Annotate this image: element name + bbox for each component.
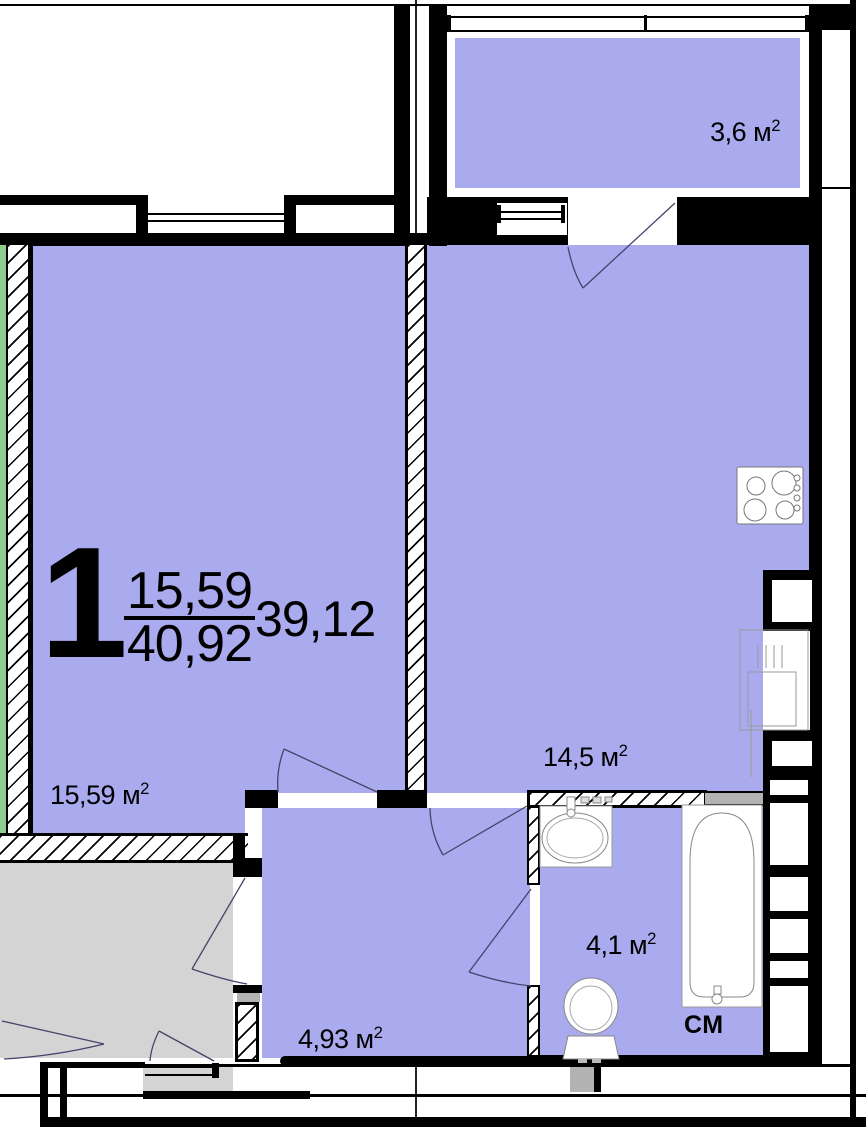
- hallway-area-label: 4,93 м2: [298, 1023, 382, 1055]
- unit-room-count: 1: [40, 542, 124, 665]
- neighbor-door-swing: [150, 1031, 214, 1061]
- living-room-area-label: 15,59 м2: [50, 779, 149, 811]
- toilet-icon: [563, 978, 619, 1063]
- kitchen-hall-door-swing: [430, 806, 527, 855]
- unit-area-fraction: 15,59 40,92: [124, 570, 255, 666]
- neighbor-door-swing: [2, 1021, 104, 1059]
- floor-plan: 3,6 м2 15,59 м2 14,5 м2 4,93 м2 4,1 м2 С…: [0, 0, 866, 1127]
- unit-living-area: 15,59: [124, 570, 255, 620]
- kitchen-sink-unit-icon: [740, 630, 808, 777]
- balcony-door-swing: [568, 203, 675, 288]
- balcony-area-label: 3,6 м2: [640, 116, 780, 148]
- unit-total-area: 40,92: [124, 620, 255, 667]
- kitchen-area-label: 14,5 м2: [543, 741, 627, 773]
- living-room-door-swing: [278, 749, 377, 792]
- bathroom-door-swing: [469, 889, 531, 986]
- sink-icon: [540, 797, 612, 867]
- washing-machine-label: СМ: [684, 1011, 724, 1040]
- bathtub-icon: [682, 805, 762, 1007]
- unit-summary-label: 1 15,59 40,92 39,12: [40, 542, 375, 666]
- stove-icon: [737, 467, 803, 524]
- unit-adjusted-area: 39,12: [255, 597, 375, 642]
- bathroom-area-label: 4,1 м2: [586, 929, 656, 961]
- entrance-door-swing: [192, 878, 247, 984]
